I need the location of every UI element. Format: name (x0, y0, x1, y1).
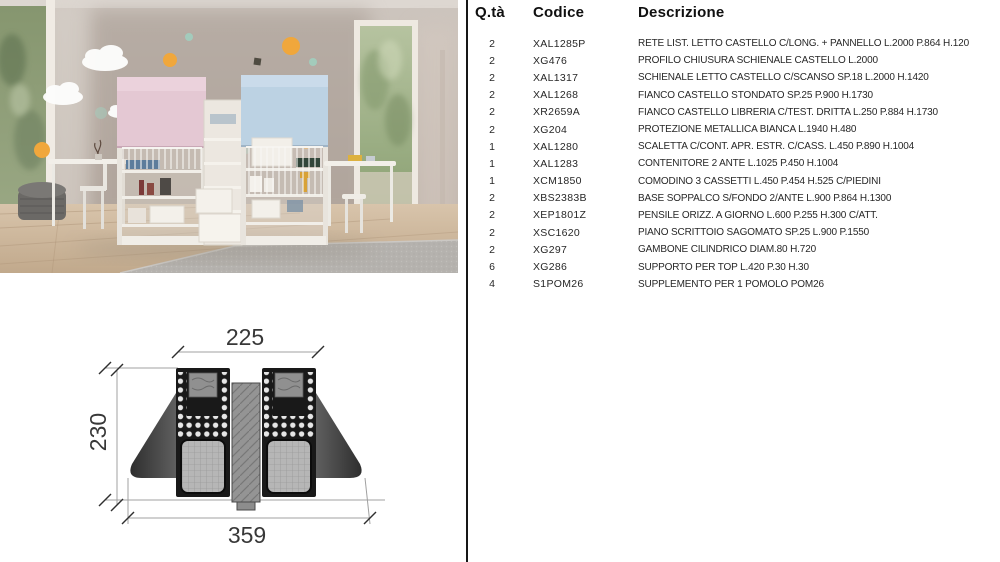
cell-qty: 2 (475, 38, 509, 50)
cell-qty: 6 (475, 261, 509, 273)
cell-qty: 2 (475, 209, 509, 221)
parts-table: Q.tà Codice Descrizione 2 XAL1285P RETE … (475, 0, 1000, 293)
cell-desc: SCALETTA C/CONT. APR. ESTR. C/CASS. L.45… (638, 141, 1000, 152)
section-divider (466, 0, 468, 562)
table-row: 4 S1POM26 SUPPLEMENTO PER 1 POMOLO POM26 (475, 276, 1000, 293)
cell-qty: 1 (475, 141, 509, 153)
cell-qty: 2 (475, 244, 509, 256)
cell-desc: FIANCO CASTELLO LIBRERIA C/TEST. DRITTA … (638, 107, 1000, 118)
table-row: 2 XAL1268 FIANCO CASTELLO STONDATO SP.25… (475, 87, 1000, 104)
cell-desc: SCHIENALE LETTO CASTELLO C/SCANSO SP.18 … (638, 72, 1000, 83)
dim-label-bottom: 359 (228, 522, 266, 548)
parts-table-header: Q.tà Codice Descrizione (475, 0, 1000, 22)
cell-qty: 2 (475, 124, 509, 136)
cell-qty: 2 (475, 89, 509, 101)
cell-qty: 1 (475, 158, 509, 170)
cell-desc: RETE LIST. LETTO CASTELLO C/LONG. + PANN… (638, 38, 1000, 49)
table-row: 2 XBS2383B BASE SOPPALCO S/FONDO 2/ANTE … (475, 190, 1000, 207)
cell-code: XAL1317 (533, 72, 638, 84)
cell-qty: 2 (475, 106, 509, 118)
ladder-column-top-view (232, 383, 260, 510)
table-row: 2 XAL1285P RETE LIST. LETTO CASTELLO C/L… (475, 35, 1000, 52)
technical-drawing-svg: 225 230 359 (60, 305, 410, 562)
cell-desc: PROFILO CHIUSURA SCHIENALE CASTELLO L.20… (638, 55, 1000, 66)
col-header-qty: Q.tà (475, 4, 509, 22)
cell-desc: PROTEZIONE METALLICA BIANCA L.1940 H.480 (638, 124, 1000, 135)
table-row: 2 XG204 PROTEZIONE METALLICA BIANCA L.19… (475, 121, 1000, 138)
cell-code: XR2659A (533, 106, 638, 118)
table-row: 2 XEP1801Z PENSILE ORIZZ. A GIORNO L.600… (475, 207, 1000, 224)
col-header-desc: Descrizione (638, 4, 1000, 22)
room-photo-svg (0, 0, 458, 273)
cell-qty: 2 (475, 72, 509, 84)
right-loft-bed (241, 75, 328, 245)
cell-desc: CONTENITORE 2 ANTE L.1025 P.450 H.1004 (638, 158, 1000, 169)
cell-desc: SUPPLEMENTO PER 1 POMOLO POM26 (638, 279, 1000, 290)
dim-label-left: 230 (85, 413, 111, 451)
cell-qty: 2 (475, 227, 509, 239)
cell-qty: 2 (475, 55, 509, 67)
left-loft-bed (117, 77, 206, 245)
cell-code: XAL1285P (533, 38, 638, 50)
technical-drawing: 225 230 359 (60, 305, 410, 562)
cell-code: XG476 (533, 55, 638, 67)
cell-desc: FIANCO CASTELLO STONDATO SP.25 P.900 H.1… (638, 90, 1000, 101)
left-desk-top-view (130, 393, 176, 478)
table-row: 2 XG476 PROFILO CHIUSURA SCHIENALE CASTE… (475, 52, 1000, 69)
catalog-page: 225 230 359 Q.tà Codice Descrizione 2 XA… (0, 0, 1000, 562)
cell-code: XAL1268 (533, 89, 638, 101)
col-header-code: Codice (533, 4, 638, 22)
room-photo (0, 0, 458, 273)
table-row: 2 XSC1620 PIANO SCRITTOIO SAGOMATO SP.25… (475, 224, 1000, 241)
cell-code: XAL1283 (533, 158, 638, 170)
table-row: 6 XG286 SUPPORTO PER TOP L.420 P.30 H.30 (475, 258, 1000, 275)
cell-qty: 4 (475, 278, 509, 290)
cell-desc: SUPPORTO PER TOP L.420 P.30 H.30 (638, 262, 1000, 273)
cell-code: XAL1280 (533, 141, 638, 153)
right-window (354, 20, 418, 216)
cell-code: XCM1850 (533, 175, 638, 187)
right-bed-top-view (262, 368, 316, 497)
cell-qty: 2 (475, 192, 509, 204)
table-row: 2 XG297 GAMBONE CILINDRICO DIAM.80 H.720 (475, 241, 1000, 258)
cell-code: XG204 (533, 124, 638, 136)
cell-code: XG297 (533, 244, 638, 256)
cell-desc: PENSILE ORIZZ. A GIORNO L.600 P.255 H.30… (638, 210, 1000, 221)
table-row: 1 XCM1850 COMODINO 3 CASSETTI L.450 P.45… (475, 173, 1000, 190)
cell-desc: BASE SOPPALCO S/FONDO 2/ANTE L.900 P.864… (638, 193, 1000, 204)
table-row: 2 XR2659A FIANCO CASTELLO LIBRERIA C/TES… (475, 104, 1000, 121)
cell-desc: COMODINO 3 CASSETTI L.450 P.454 H.525 C/… (638, 176, 1000, 187)
cell-desc: PIANO SCRITTOIO SAGOMATO SP.25 L.900 P.1… (638, 227, 1000, 238)
cell-qty: 1 (475, 175, 509, 187)
pouf (18, 182, 66, 220)
right-desk-top-view (316, 393, 362, 478)
table-row: 2 XAL1317 SCHIENALE LETTO CASTELLO C/SCA… (475, 69, 1000, 86)
cell-code: S1POM26 (533, 278, 638, 290)
left-bed-top-view (176, 368, 230, 497)
parts-table-body: 2 XAL1285P RETE LIST. LETTO CASTELLO C/L… (475, 35, 1000, 293)
dim-label-top: 225 (226, 324, 264, 350)
cell-desc: GAMBONE CILINDRICO DIAM.80 H.720 (638, 244, 1000, 255)
cell-code: XG286 (533, 261, 638, 273)
table-row: 1 XAL1280 SCALETTA C/CONT. APR. ESTR. C/… (475, 138, 1000, 155)
cell-code: XBS2383B (533, 192, 638, 204)
cell-code: XEP1801Z (533, 209, 638, 221)
table-row: 1 XAL1283 CONTENITORE 2 ANTE L.1025 P.45… (475, 155, 1000, 172)
cell-code: XSC1620 (533, 227, 638, 239)
